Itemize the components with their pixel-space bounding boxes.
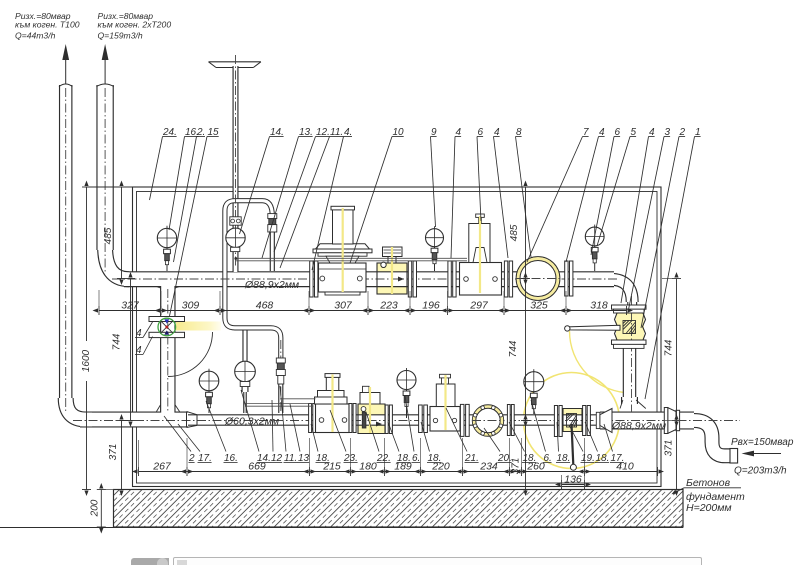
svg-text:към коген. Т100: към коген. Т100	[15, 20, 80, 30]
svg-text:318: 318	[590, 300, 608, 312]
svg-text:307: 307	[334, 300, 353, 312]
svg-text:744: 744	[112, 333, 123, 350]
svg-text:485: 485	[509, 224, 520, 241]
svg-text:371: 371	[664, 440, 675, 457]
svg-text:Q=159m3/h: Q=159m3/h	[98, 31, 143, 41]
svg-text:Q=44m3/h: Q=44m3/h	[15, 31, 56, 41]
svg-text:180: 180	[359, 461, 377, 473]
svg-text:Ø88,9х2мм: Ø88,9х2мм	[244, 279, 299, 291]
svg-text:Ø60,3х2мм: Ø60,3х2мм	[224, 416, 279, 428]
svg-text:223: 223	[379, 300, 398, 312]
svg-text:468: 468	[256, 300, 274, 312]
svg-text:485: 485	[103, 227, 114, 244]
svg-text:267: 267	[152, 461, 172, 473]
svg-text:309: 309	[182, 300, 200, 312]
svg-text:136: 136	[564, 474, 582, 486]
svg-text:371: 371	[511, 458, 522, 475]
svg-text:744: 744	[664, 339, 675, 356]
svg-text:325: 325	[530, 300, 548, 312]
svg-text:към коген. 2хТ200: към коген. 2хТ200	[98, 20, 172, 30]
svg-text:744: 744	[508, 340, 519, 357]
svg-text:371: 371	[108, 444, 119, 461]
svg-text:Бетонов: Бетонов	[686, 477, 731, 489]
svg-text:1600: 1600	[81, 349, 92, 372]
svg-text:196: 196	[422, 300, 440, 312]
svg-text:Рвх=150мвар: Рвх=150мвар	[731, 437, 794, 448]
svg-text:Н=200мм: Н=200мм	[686, 502, 732, 514]
svg-text:Ø88,9х2мм: Ø88,9х2мм	[611, 420, 666, 432]
svg-text:Q=203m3/h: Q=203m3/h	[734, 466, 787, 477]
svg-text:234: 234	[479, 461, 498, 473]
svg-text:297: 297	[469, 300, 489, 312]
svg-text:200: 200	[90, 499, 101, 517]
